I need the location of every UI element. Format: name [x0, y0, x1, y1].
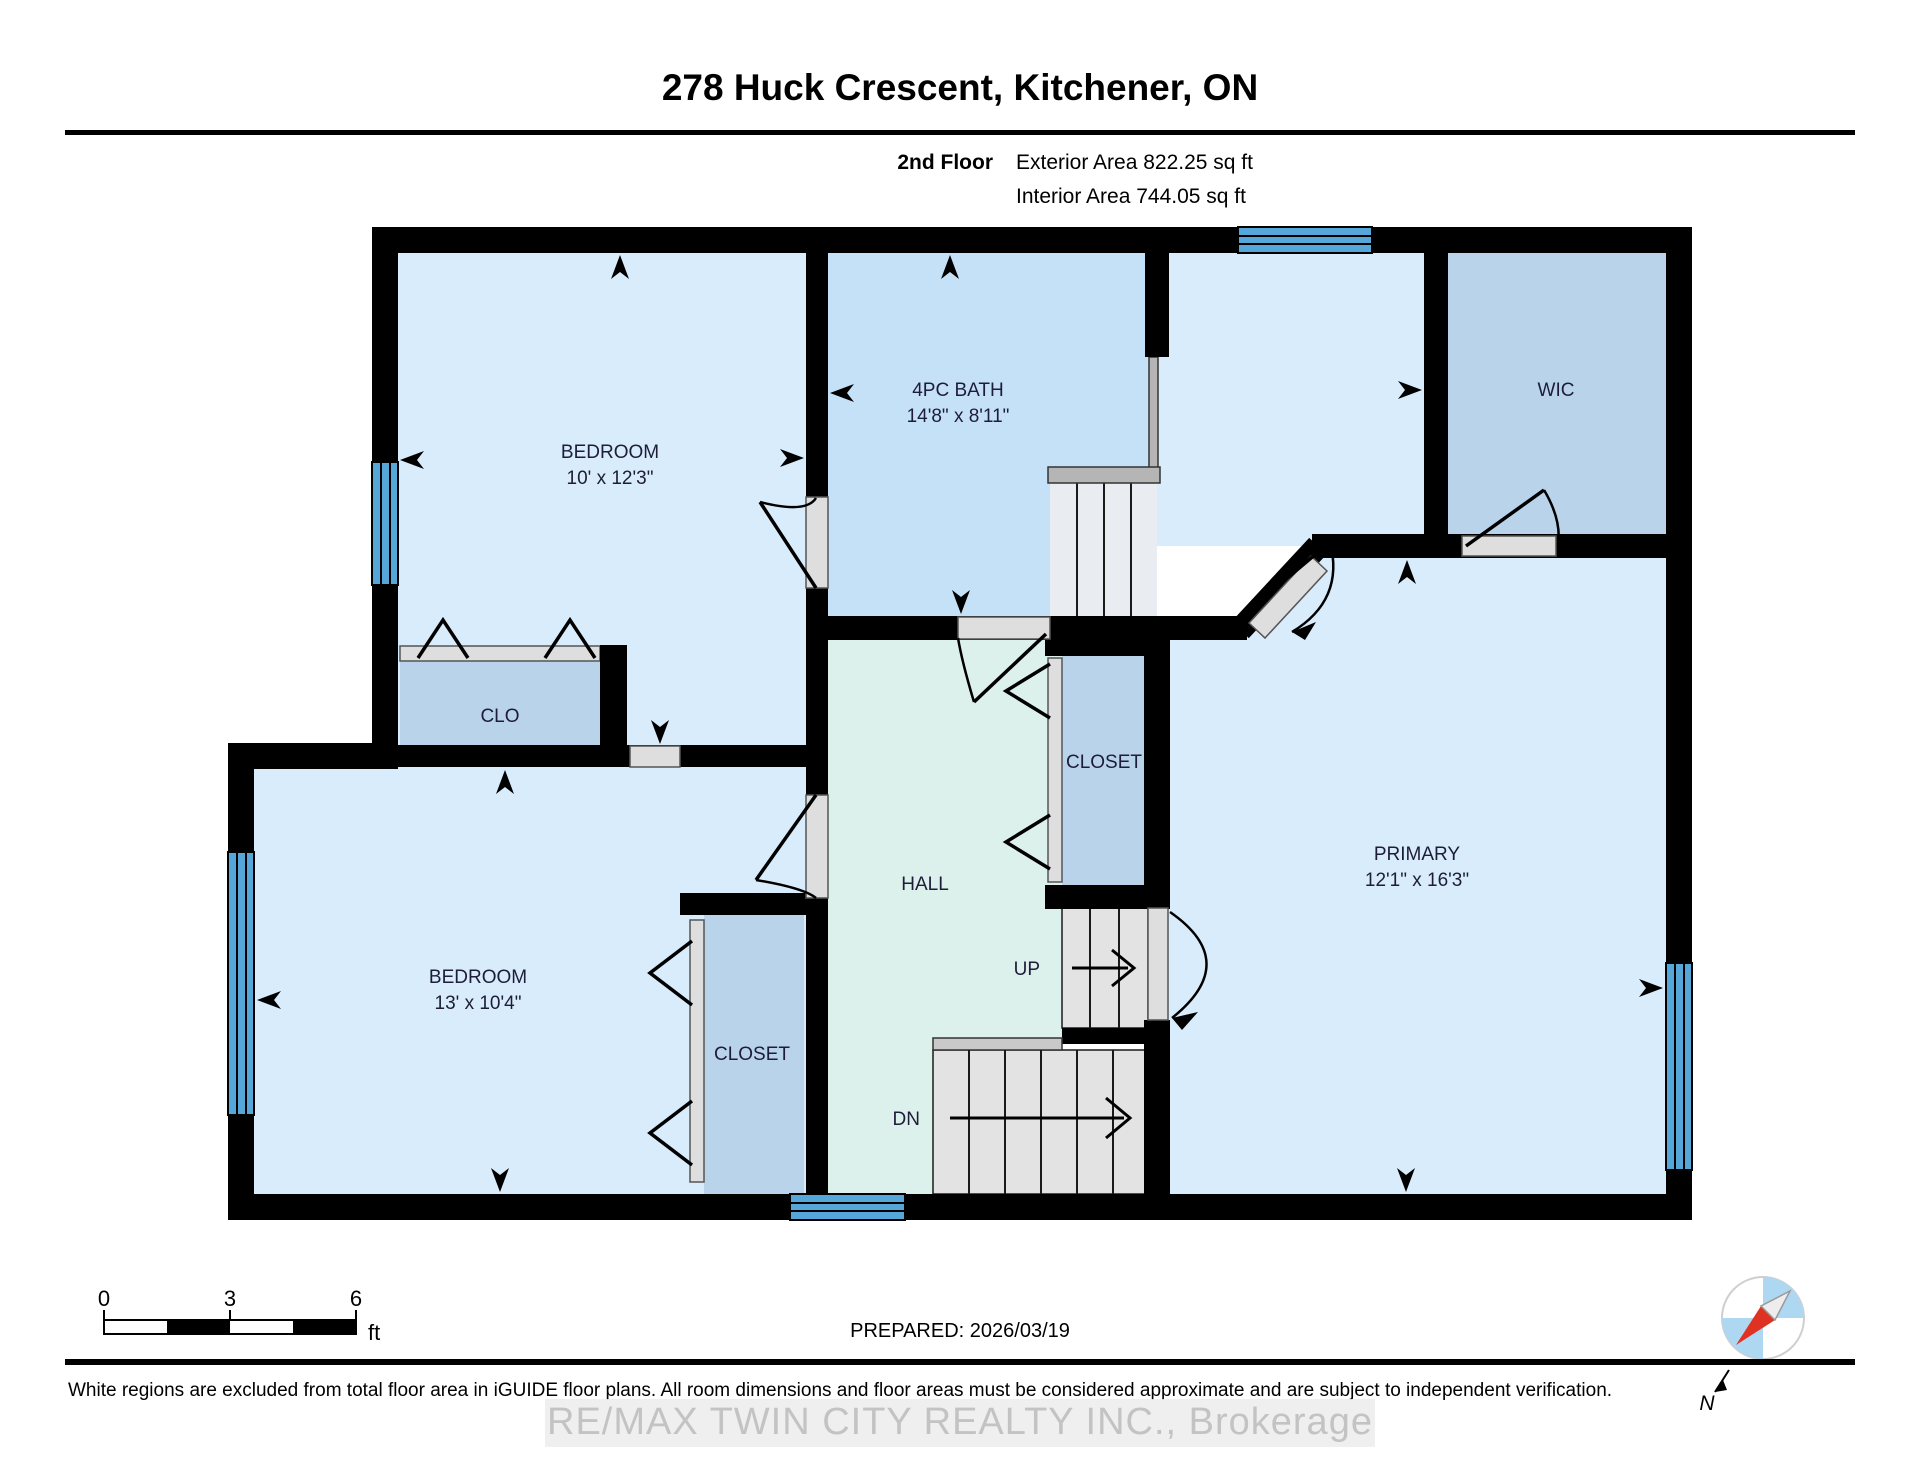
- stair-railing-horizontal: [1048, 467, 1160, 483]
- floor-label: 2nd Floor: [897, 151, 993, 174]
- scale-tick-3: 3: [224, 1286, 236, 1311]
- stairs-down: [933, 1038, 1148, 1194]
- compass-icon: N: [1699, 1277, 1804, 1415]
- primary-dims: 12'1" x 16'3": [1365, 870, 1469, 891]
- door-bedroom2-north-opening: [630, 746, 680, 767]
- footer-disclaimer: White regions are excluded from total fl…: [68, 1380, 1612, 1401]
- interior-area-label: Interior Area 744.05 sq ft: [1016, 185, 1246, 208]
- stairs-up: [1062, 907, 1148, 1044]
- closet-upper-label: CLOSET: [1066, 752, 1142, 773]
- clo-door-track: [400, 646, 600, 661]
- floor-plan-canvas: 278 Huck Crescent, Kitchener, ON 2nd Flo…: [0, 0, 1920, 1484]
- window-hall-south: [790, 1194, 905, 1220]
- scale-unit: ft: [368, 1320, 380, 1345]
- floor-plan-page: 278 Huck Crescent, Kitchener, ON 2nd Flo…: [0, 0, 1920, 1484]
- stairs-divider-wall: [1062, 1028, 1148, 1044]
- compass-north-label: N: [1699, 1392, 1715, 1415]
- primary-label: PRIMARY: [1374, 844, 1461, 865]
- scale-tick-6: 6: [350, 1286, 362, 1311]
- wall-closet-lower-north: [680, 893, 817, 915]
- bedroom-1-dims: 10' x 12'3": [567, 468, 654, 489]
- stairs-up-label: UP: [1014, 959, 1040, 980]
- bedroom-2-label: BEDROOM: [429, 967, 527, 988]
- prepared-date: PREPARED: 2026/03/19: [850, 1320, 1070, 1342]
- header-divider: [65, 130, 1855, 135]
- watermark-text: RE/MAX TWIN CITY REALTY INC., Brokerage: [547, 1401, 1373, 1443]
- window-bedroom2-west: [228, 852, 254, 1115]
- wall-closet-upper-south: [1045, 885, 1170, 909]
- window-bedroom1-west: [372, 462, 398, 585]
- closet-upper-track: [1048, 658, 1062, 882]
- closet-lower-track: [690, 920, 704, 1182]
- scale-bar: 0 3 6 ft: [98, 1286, 380, 1345]
- wall-closet-upper-north: [1045, 638, 1170, 656]
- stairs-down-nosing: [933, 1038, 1062, 1050]
- footer-divider: [65, 1359, 1855, 1365]
- window-primary-east: [1666, 963, 1692, 1170]
- hall-label: HALL: [901, 874, 949, 895]
- bedroom-2-dims: 13' x 10'4": [435, 993, 522, 1014]
- brokerage-watermark: RE/MAX TWIN CITY REALTY INC., Brokerage: [545, 1399, 1375, 1447]
- stair-railing-vertical: [1149, 357, 1158, 471]
- closet-lower-label: CLOSET: [714, 1044, 790, 1065]
- scale-tick-0: 0: [98, 1286, 110, 1311]
- wall-clo-east: [600, 645, 627, 761]
- landing-floor: [1157, 240, 1436, 546]
- window-landing-north: [1238, 227, 1372, 253]
- clo-label: CLO: [480, 706, 519, 727]
- wic-label: WIC: [1538, 380, 1575, 401]
- bedroom-1-label: BEDROOM: [561, 442, 659, 463]
- bath-label: 4PC BATH: [912, 380, 1004, 401]
- stairs-down-label: DN: [893, 1109, 920, 1130]
- bath-dims: 14'8" x 8'11": [907, 406, 1010, 427]
- exterior-area-label: Exterior Area 822.25 sq ft: [1016, 151, 1253, 174]
- page-title: 278 Huck Crescent, Kitchener, ON: [662, 67, 1258, 108]
